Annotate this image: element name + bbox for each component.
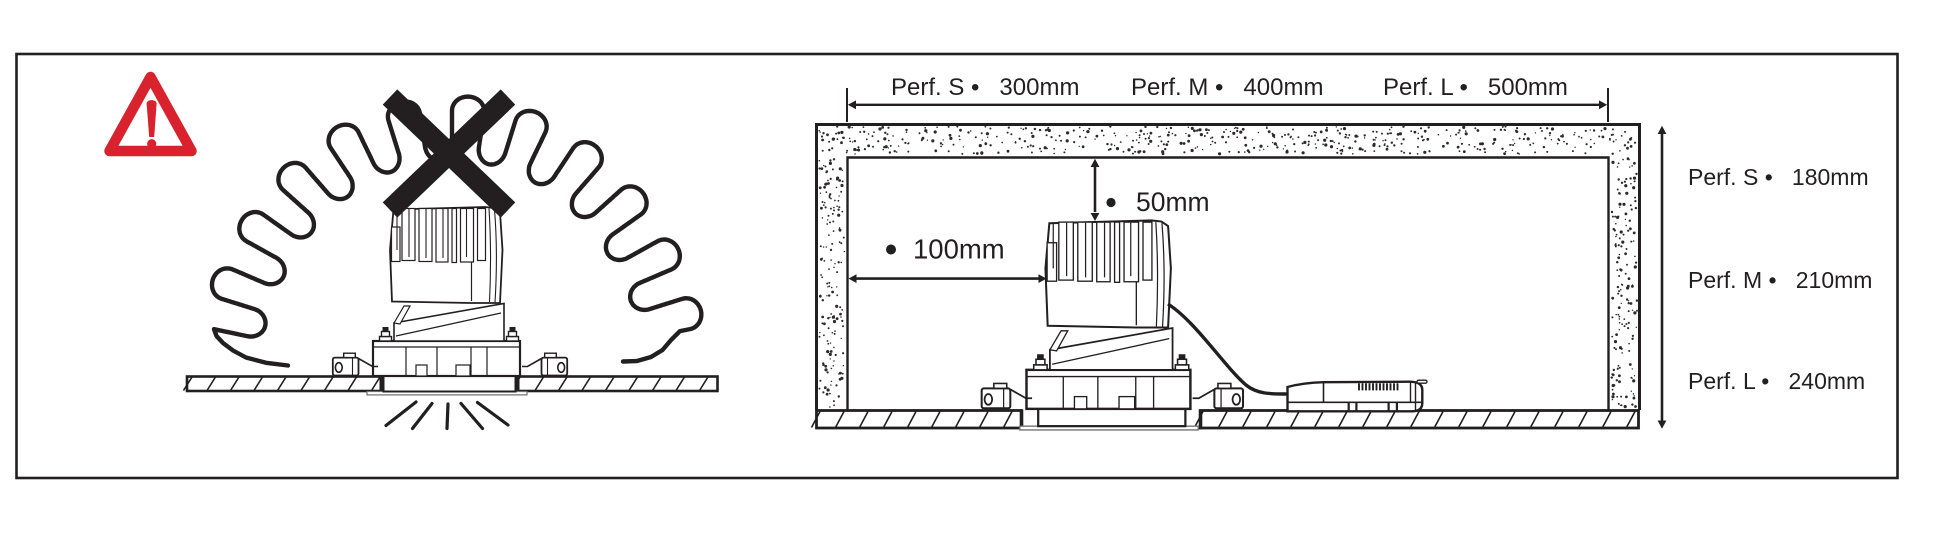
- svg-text:100mm: 100mm: [913, 234, 1005, 265]
- svg-text:Perf. M • 400mm: Perf. M • 400mm: [1131, 74, 1323, 101]
- svg-text:Perf. L • 500mm: Perf. L • 500mm: [1383, 74, 1568, 101]
- svg-text:Perf. M • 210mm: Perf. M • 210mm: [1688, 267, 1872, 293]
- svg-text:Perf. S • 300mm: Perf. S • 300mm: [891, 74, 1079, 101]
- svg-text:Perf. L • 240mm: Perf. L • 240mm: [1688, 368, 1865, 394]
- svg-text:Perf. S • 180mm: Perf. S • 180mm: [1688, 164, 1869, 190]
- svg-text:50mm: 50mm: [1136, 187, 1210, 217]
